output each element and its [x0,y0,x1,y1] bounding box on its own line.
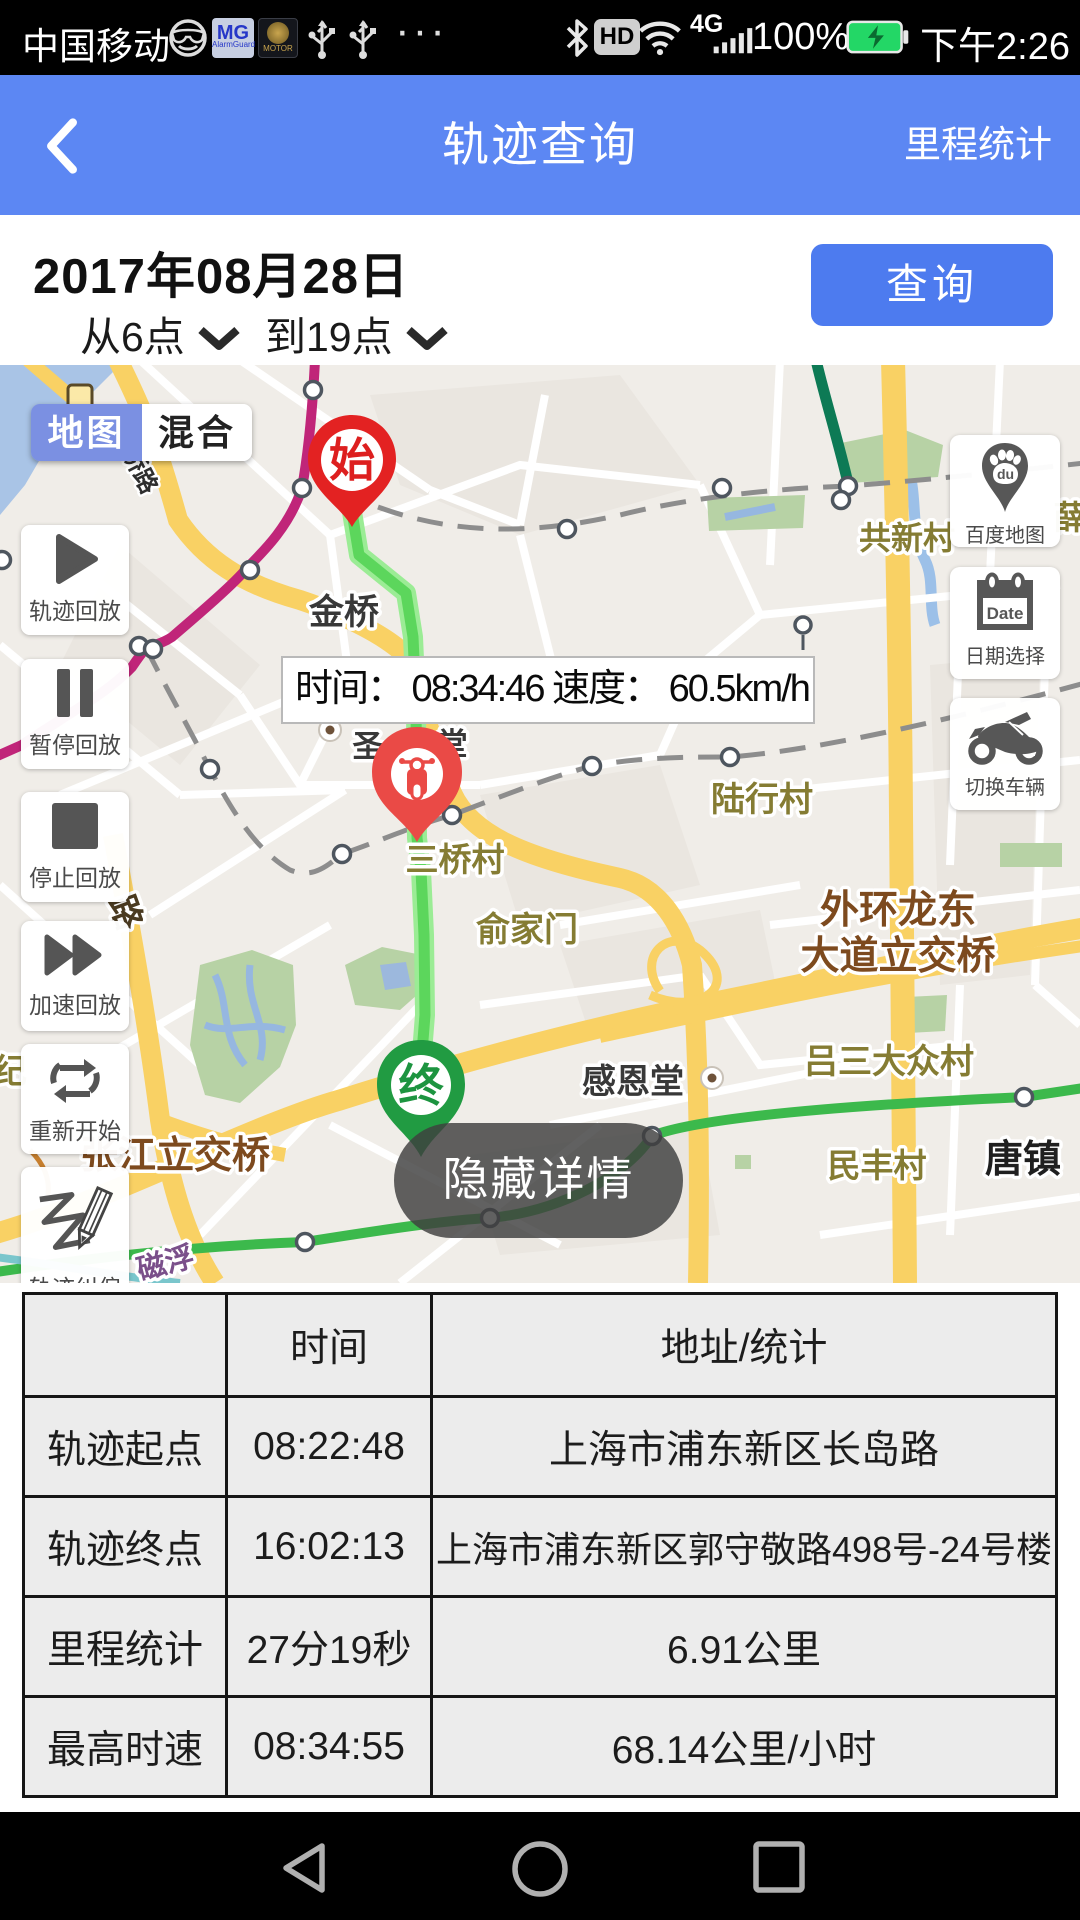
svg-text:外环龙东: 外环龙东 [820,889,976,932]
svg-text:民丰村: 民丰村 [828,1147,927,1184]
svg-text:三桥村: 三桥村 [406,841,505,878]
svg-text:Date: Date [987,604,1024,623]
svg-text:唐镇: 唐镇 [985,1138,1061,1181]
svg-text:俞家门: 俞家门 [476,910,578,949]
svg-text:陆行村: 陆行村 [711,781,813,819]
svg-text:终: 终 [398,1060,444,1111]
svg-text:共新村: 共新村 [859,520,955,556]
svg-text:始: 始 [329,434,375,486]
svg-text:吕三大众村: 吕三大众村 [804,1043,974,1081]
svg-text:金桥: 金桥 [308,592,379,632]
svg-text:du: du [997,466,1014,482]
svg-text:感恩堂: 感恩堂 [582,1063,684,1101]
svg-text:大道立交桥: 大道立交桥 [800,935,995,978]
svg-text:磁浮: 磁浮 [133,1239,198,1283]
